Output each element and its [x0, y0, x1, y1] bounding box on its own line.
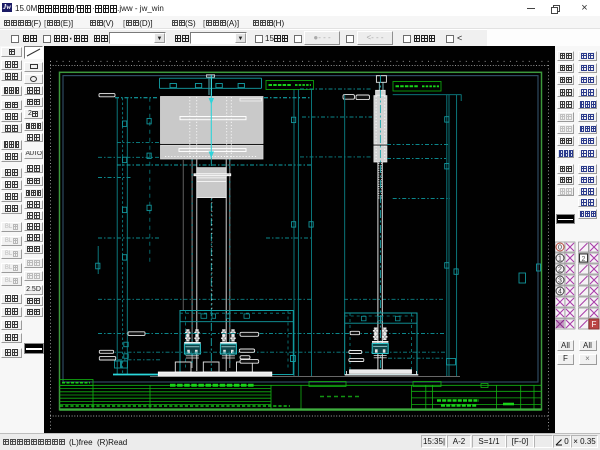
svg-text:4: 4 — [558, 289, 562, 296]
svg-text:F: F — [592, 320, 597, 329]
svg-text:2: 2 — [582, 256, 586, 263]
svg-text:0: 0 — [558, 245, 562, 252]
svg-text:3: 3 — [558, 278, 562, 285]
svg-text:2: 2 — [558, 267, 562, 274]
svg-text:1: 1 — [558, 256, 562, 263]
